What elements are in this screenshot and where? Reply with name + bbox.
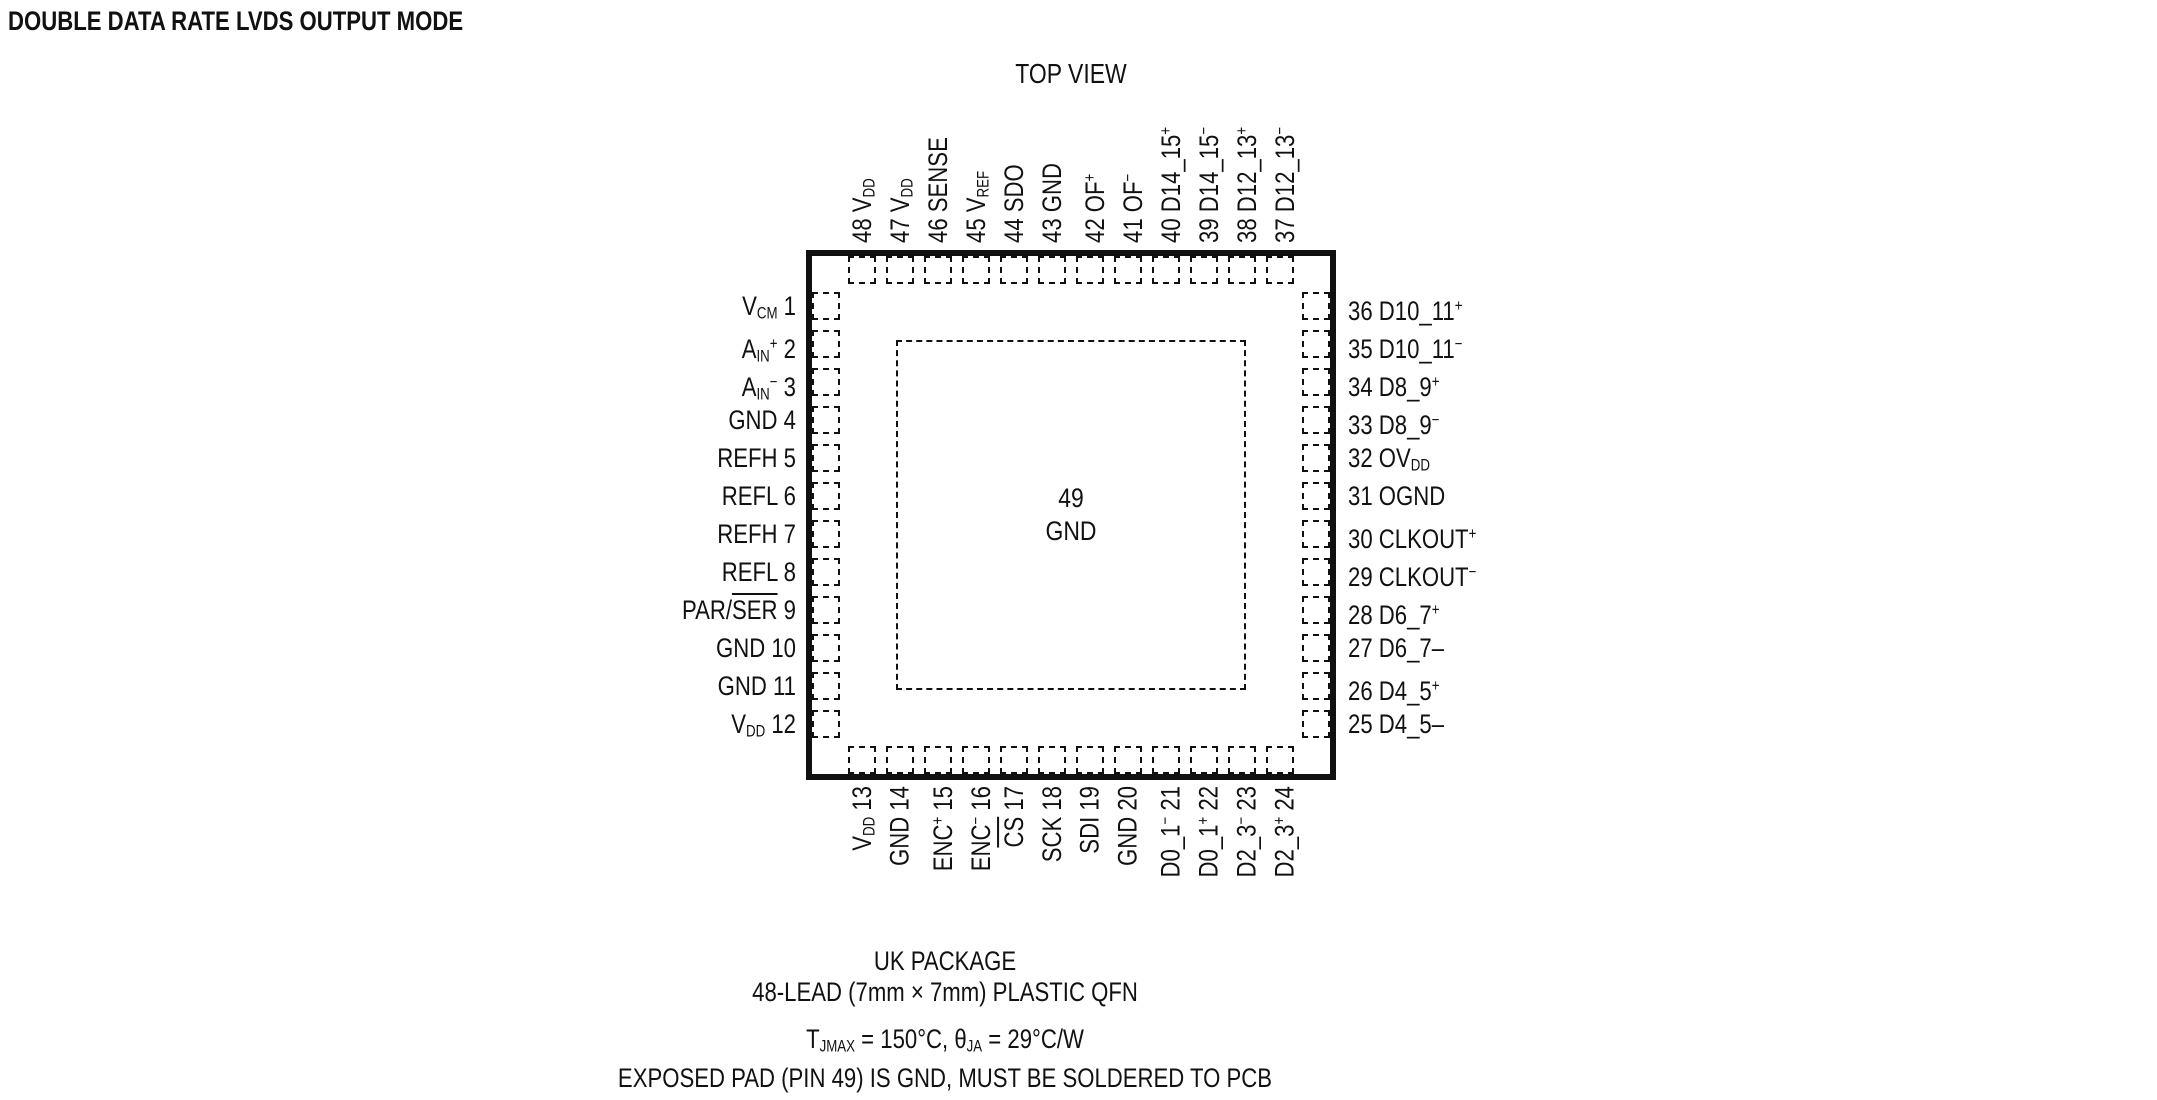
pin-pad-15: [924, 746, 952, 774]
pin-pad-40: [1152, 256, 1180, 284]
pin-pad-7: [812, 520, 840, 548]
pin-pad-6: [812, 482, 840, 510]
pin-pad-37: [1266, 256, 1294, 284]
pin-label-31: 31 OGND: [1348, 480, 1445, 512]
pin-label-30: 30 CLKOUT+: [1348, 518, 1476, 550]
pin-label-35: 35 D10_11−: [1348, 328, 1462, 360]
pin-pad-9: [812, 596, 840, 624]
pin-pad-44: [1000, 256, 1028, 284]
pin-pad-48: [848, 256, 876, 284]
exposed-pad-name: GND: [1046, 515, 1097, 548]
pin-pad-5: [812, 444, 840, 472]
pin-pad-41: [1114, 256, 1142, 284]
pin-pad-17: [1000, 746, 1028, 774]
pinout-diagram: DOUBLE DATA RATE LVDS OUTPUT MODE TOP VI…: [0, 0, 2157, 1100]
pin-pad-25: [1302, 710, 1330, 738]
pin-pad-30: [1302, 520, 1330, 548]
pin-pad-47: [886, 256, 914, 284]
pin-pad-16: [962, 746, 990, 774]
pin-label-1: VCM 1: [455, 290, 796, 322]
pin-pad-42: [1076, 256, 1104, 284]
pin-pad-31: [1302, 482, 1330, 510]
pin-pad-18: [1038, 746, 1066, 774]
pin-pad-29: [1302, 558, 1330, 586]
top-view-label: TOP VIEW: [854, 58, 1289, 90]
pin-label-11: GND 11: [455, 670, 796, 702]
pin-pad-32: [1302, 444, 1330, 472]
page-title: DOUBLE DATA RATE LVDS OUTPUT MODE: [8, 6, 463, 37]
pin-label-10: GND 10: [455, 632, 796, 664]
pin-pad-45: [962, 256, 990, 284]
pin-pad-26: [1302, 672, 1330, 700]
pin-label-29: 29 CLKOUT−: [1348, 556, 1476, 588]
pin-pad-24: [1266, 746, 1294, 774]
pin-label-5: REFH 5: [455, 442, 796, 474]
pin-pad-46: [924, 256, 952, 284]
pin-label-25: 25 D4_5–: [1348, 708, 1444, 740]
pin-pad-35: [1302, 330, 1330, 358]
pin-pad-13: [848, 746, 876, 774]
pin-pad-21: [1152, 746, 1180, 774]
pin-pad-14: [886, 746, 914, 774]
pin-label-12: VDD 12: [455, 708, 796, 740]
pin-label-33: 33 D8_9−: [1348, 404, 1439, 436]
pin-label-28: 28 D6_7+: [1348, 594, 1439, 626]
pin-pad-27: [1302, 634, 1330, 662]
pin-pad-4: [812, 406, 840, 434]
exposed-pad: 49 GND: [896, 340, 1246, 690]
package-name: UK PACKAGE: [453, 946, 1437, 977]
pin-pad-33: [1302, 406, 1330, 434]
pin-pad-1: [812, 292, 840, 320]
pin-pad-10: [812, 634, 840, 662]
package-outline: 49 GND: [806, 250, 1336, 780]
pin-pad-28: [1302, 596, 1330, 624]
pin-pad-39: [1190, 256, 1218, 284]
pin-label-8: REFL 8: [455, 556, 796, 588]
pin-pad-19: [1076, 746, 1104, 774]
pin-pad-36: [1302, 292, 1330, 320]
pin-label-3: AIN− 3: [455, 366, 796, 398]
pin-pad-12: [812, 710, 840, 738]
exposed-pad-note: EXPOSED PAD (PIN 49) IS GND, MUST BE SOL…: [453, 1063, 1437, 1094]
pin-label-36: 36 D10_11+: [1348, 290, 1462, 322]
pin-pad-38: [1228, 256, 1256, 284]
pin-label-2: AIN+ 2: [455, 328, 796, 360]
pin-pad-23: [1228, 746, 1256, 774]
pin-pad-3: [812, 368, 840, 396]
pin-pad-43: [1038, 256, 1066, 284]
pin-pad-8: [812, 558, 840, 586]
pin-label-26: 26 D4_5+: [1348, 670, 1439, 702]
pin-pad-2: [812, 330, 840, 358]
package-footer: UK PACKAGE 48-LEAD (7mm × 7mm) PLASTIC Q…: [345, 946, 1545, 1094]
pin-label-32: 32 OVDD: [1348, 442, 1430, 474]
pin-label-4: GND 4: [455, 404, 796, 436]
exposed-pad-number: 49: [1058, 482, 1084, 515]
pin-label-6: REFL 6: [455, 480, 796, 512]
pin-pad-11: [812, 672, 840, 700]
pin-label-34: 34 D8_9+: [1348, 366, 1439, 398]
pin-pad-34: [1302, 368, 1330, 396]
pin-label-9: PAR/SER 9: [455, 594, 796, 626]
pin-pad-20: [1114, 746, 1142, 774]
package-description: 48-LEAD (7mm × 7mm) PLASTIC QFN: [453, 977, 1437, 1008]
pin-label-27: 27 D6_7–: [1348, 632, 1444, 664]
pin-label-7: REFH 7: [455, 518, 796, 550]
pin-pad-22: [1190, 746, 1218, 774]
thermal-note: TJMAX = 150°C, θJA = 29°C/W: [453, 1024, 1437, 1063]
